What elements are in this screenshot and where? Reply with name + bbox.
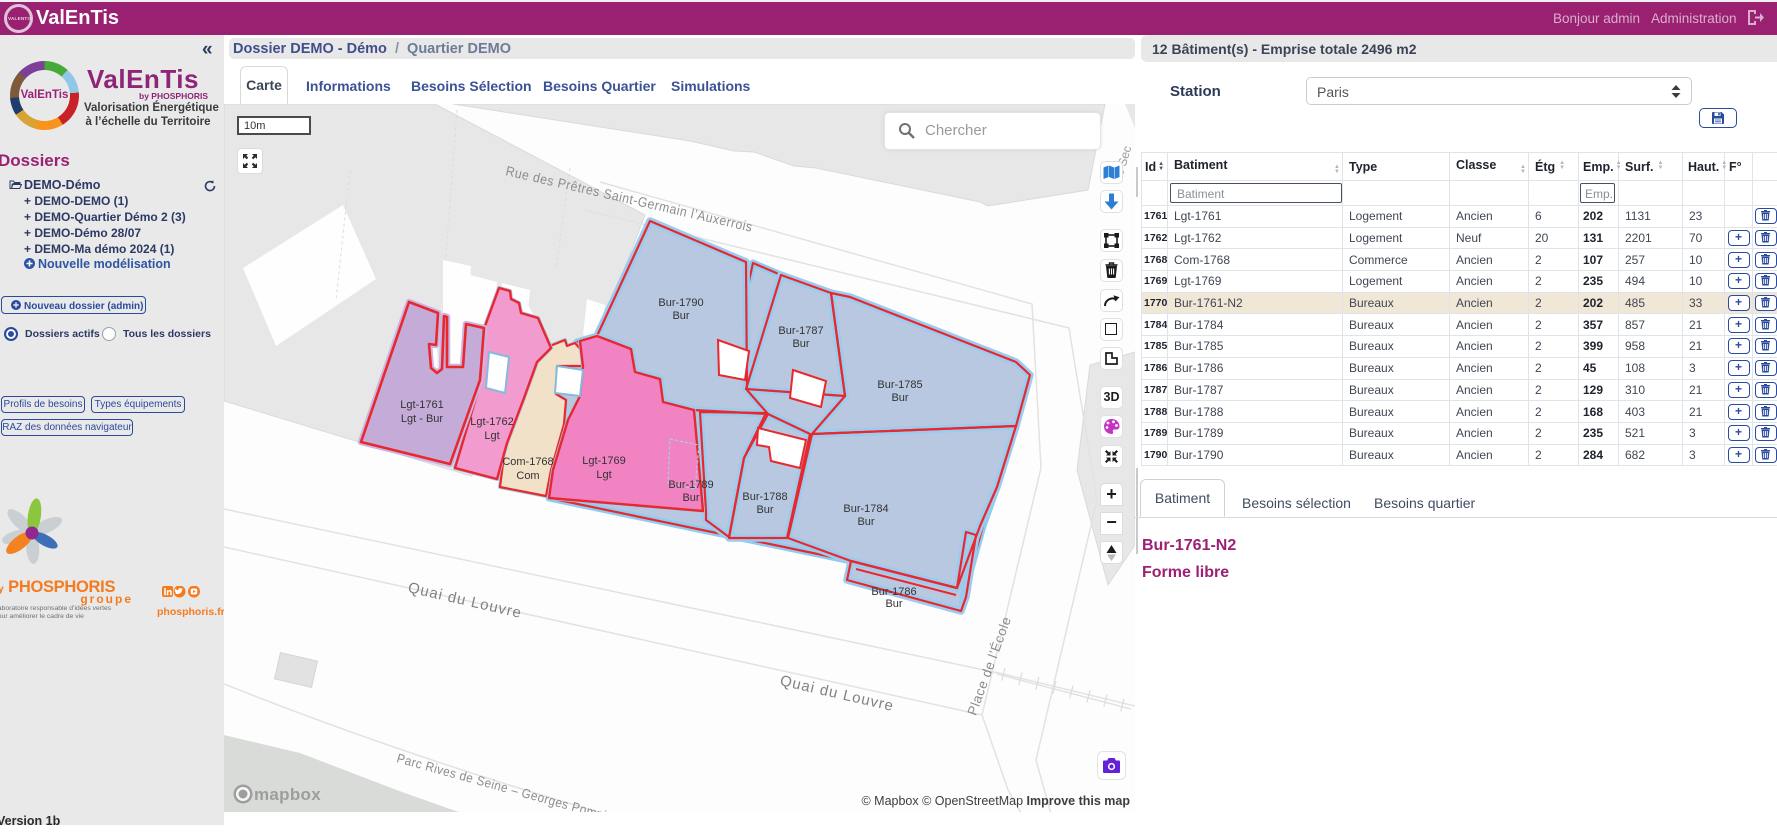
svg-text:Lgt: Lgt	[484, 430, 499, 442]
svg-text:Bur-1789: Bur-1789	[668, 479, 713, 491]
svg-text:Bur-1787: Bur-1787	[778, 325, 823, 337]
svg-text:Bur: Bur	[857, 516, 874, 528]
svg-text:Com-1768: Com-1768	[502, 456, 553, 468]
svg-text:Lgt - Bur: Lgt - Bur	[401, 413, 444, 425]
svg-text:Bur: Bur	[885, 598, 902, 610]
svg-text:Bur: Bur	[672, 310, 689, 322]
svg-text:Com: Com	[516, 470, 539, 482]
svg-text:Bur-1788: Bur-1788	[742, 491, 787, 503]
svg-text:Lgt-1762: Lgt-1762	[470, 416, 513, 428]
svg-text:mapbox: mapbox	[254, 785, 321, 804]
svg-text:Lgt-1769: Lgt-1769	[582, 455, 625, 467]
svg-text:Lgt-1761: Lgt-1761	[400, 399, 443, 411]
svg-text:Bur: Bur	[891, 392, 908, 404]
svg-text:Lgt: Lgt	[596, 469, 611, 481]
svg-text:Bur-1784: Bur-1784	[843, 503, 888, 515]
svg-text:Bur-1790: Bur-1790	[658, 297, 703, 309]
svg-text:Bur: Bur	[756, 504, 773, 516]
svg-text:Bur-1786: Bur-1786	[871, 586, 916, 598]
svg-text:© Mapbox © OpenStreetMap Impro: © Mapbox © OpenStreetMap Improve this ma…	[861, 794, 1130, 808]
svg-text:Bur: Bur	[792, 338, 809, 350]
svg-text:Bur: Bur	[682, 492, 699, 504]
svg-text:Bur-1785: Bur-1785	[877, 379, 922, 391]
